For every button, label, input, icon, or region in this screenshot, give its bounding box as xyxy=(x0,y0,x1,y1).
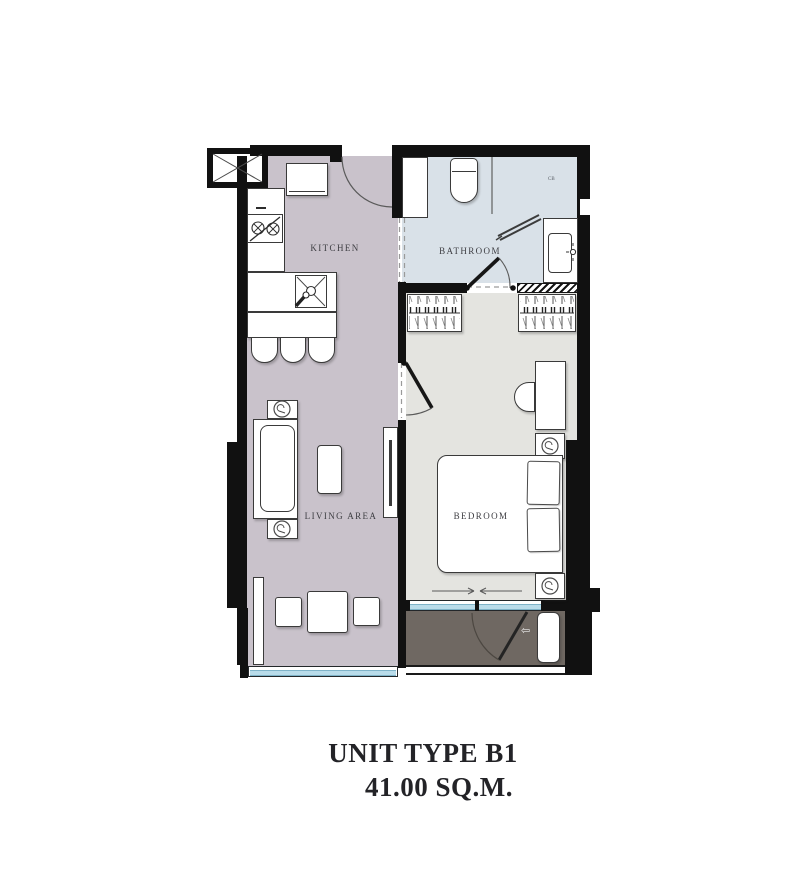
ac-unit xyxy=(537,612,560,663)
wall-balcony-right xyxy=(565,600,592,675)
unit-area-text: 41.00 SQ.M. xyxy=(39,772,800,803)
cb-mark: CB xyxy=(548,177,555,182)
side-table-top xyxy=(267,400,298,419)
refrigerator xyxy=(286,163,328,196)
kitchen-label: KITCHEN xyxy=(295,243,375,253)
floor-plan: ⇦ xyxy=(0,0,800,886)
living-window xyxy=(248,666,398,677)
bedroom-sliding-door xyxy=(406,600,545,611)
wall-bed-window-right xyxy=(545,600,568,611)
sofa xyxy=(253,419,298,519)
entry-cabinet xyxy=(402,157,428,218)
coffee-table xyxy=(317,445,342,494)
pillow xyxy=(527,461,561,506)
toilet-tank-line xyxy=(452,171,476,172)
tv xyxy=(389,440,392,506)
wall-right-upper xyxy=(577,145,590,440)
wardrobe-left xyxy=(407,294,462,332)
vanity-basin xyxy=(548,233,572,273)
wall-left-upper xyxy=(237,156,247,442)
dining-table xyxy=(307,591,348,633)
wall-window-cap-left xyxy=(240,664,248,678)
window-tick xyxy=(406,600,410,611)
wall-top-kitchen xyxy=(250,145,342,156)
living-window-glass xyxy=(250,670,396,676)
unit-type-title: UNIT TYPE B1 xyxy=(23,738,800,769)
bar-stool xyxy=(251,337,278,363)
wall-right-column xyxy=(566,440,590,603)
window-tick xyxy=(475,600,479,611)
kitchen-bar-counter xyxy=(247,312,337,338)
living-area-label: LIVING AREA xyxy=(296,511,386,521)
toilet xyxy=(450,158,478,203)
desk xyxy=(535,361,566,430)
storage-cabinet xyxy=(253,577,264,665)
wall-left-column xyxy=(227,442,247,608)
stove xyxy=(247,214,283,243)
dining-chair-left xyxy=(275,597,302,627)
window-tick xyxy=(541,600,545,611)
wall-top-bathroom xyxy=(398,145,590,157)
dining-chair-right xyxy=(353,597,380,626)
wall-hatched-segment xyxy=(517,283,578,293)
wall-entry-cap xyxy=(330,145,342,162)
bar-stool xyxy=(308,337,335,363)
sofa-seat-line xyxy=(260,425,295,512)
bathroom-label: BATHROOM xyxy=(425,246,515,256)
bar-stool xyxy=(280,337,306,363)
balcony-railing xyxy=(406,665,565,675)
wall-partition-upper xyxy=(398,282,406,363)
nightstand-bottom xyxy=(535,573,565,599)
balcony-door-swing-icon: ⇦ xyxy=(521,626,530,637)
refrigerator-handle-line xyxy=(289,191,325,192)
wall-partition-lower xyxy=(398,420,406,603)
kitchen-sink xyxy=(295,275,327,308)
wall-left-lower xyxy=(237,608,248,665)
pillow xyxy=(527,508,561,553)
wall-balcony-left xyxy=(398,603,406,668)
wardrobe-right xyxy=(518,294,576,332)
title-block: UNIT TYPE B1 41.00 SQ.M. xyxy=(30,738,800,803)
bedroom-label: BEDROOM xyxy=(436,511,526,521)
wall-bathroom-bottom xyxy=(406,283,467,293)
wall-right-notch xyxy=(580,199,590,215)
side-table-bottom xyxy=(267,519,298,539)
